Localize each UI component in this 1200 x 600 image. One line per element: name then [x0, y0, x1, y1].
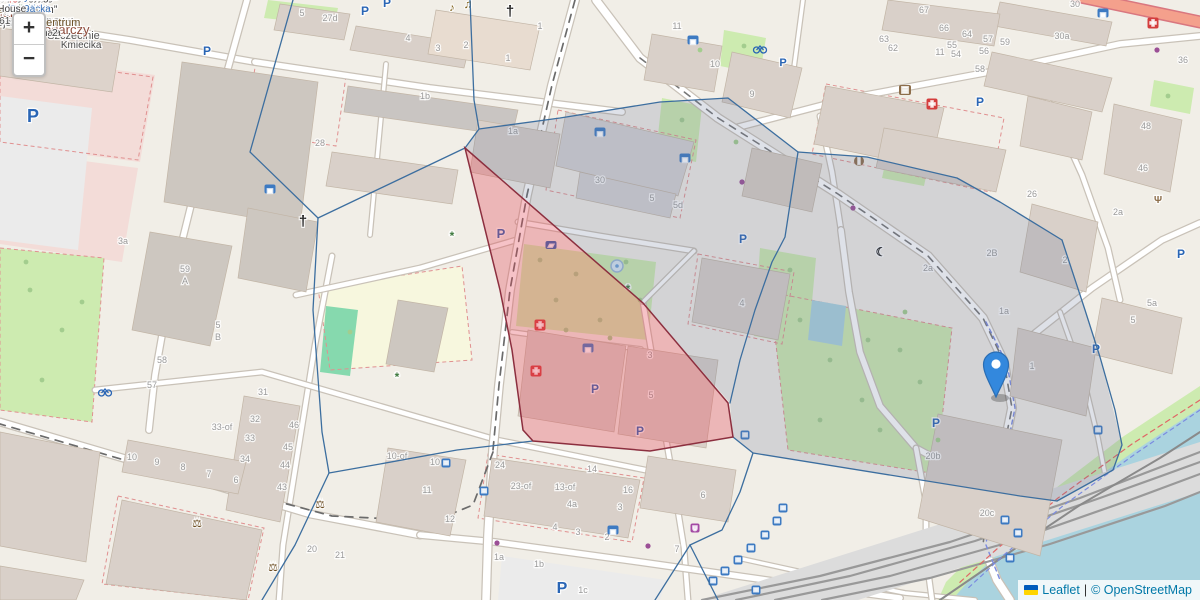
housenumber-label: 26 — [1027, 189, 1037, 199]
parking-icon: P — [779, 57, 786, 69]
bus-stop-icon: = — [1008, 556, 1012, 563]
poi-dot — [494, 540, 499, 545]
housenumber-label: 12 — [445, 514, 455, 524]
bus-stop-icon: = — [723, 569, 727, 576]
building — [0, 432, 100, 562]
park — [0, 248, 104, 422]
map-canvas: Księcia SamboraStoisławaStoisławaPotulic… — [0, 0, 1200, 600]
housenumber-label: 58 — [157, 355, 167, 365]
housenumber-label: 57 — [147, 380, 157, 390]
zoom-control: + − — [12, 12, 46, 77]
housenumber-label: 5a — [1147, 298, 1157, 308]
housenumber-label: 14 — [587, 464, 597, 474]
hotel-icon: ▄ — [1101, 11, 1106, 17]
housenumber-label: 44 — [280, 460, 290, 470]
marker-hole — [991, 359, 1000, 368]
restaurant-icon: Ψ — [1154, 195, 1162, 206]
trees — [742, 44, 747, 49]
housenumber-label: 59 — [1000, 37, 1010, 47]
justice-scales-icon: ⚖ — [192, 518, 202, 530]
bus-stop-icon: = — [775, 519, 779, 526]
bus-stop-icon: = — [482, 489, 486, 496]
music-note-icon: ♪ — [449, 2, 455, 14]
bus-stop-icon: = — [754, 588, 758, 595]
parking-icon: P — [976, 95, 984, 109]
housenumber-label: 5 — [299, 8, 304, 18]
zoom-out-button[interactable]: − — [14, 45, 44, 75]
housenumber-label: 31 — [258, 387, 268, 397]
housenumber-label: 46 — [289, 420, 299, 430]
housenumber-label: 20 — [307, 544, 317, 554]
trees — [40, 378, 45, 383]
parking-icon: P — [203, 44, 211, 58]
housenumber-label: 21 — [335, 550, 345, 560]
poi-dot — [1154, 47, 1159, 52]
pharmacy-icon: + — [929, 100, 935, 111]
trees — [28, 288, 33, 293]
housenumber-label: 8 — [180, 462, 185, 472]
leaflet-map[interactable]: Księcia SamboraStoisławaStoisławaPotulic… — [0, 0, 1200, 600]
trees — [1166, 94, 1171, 99]
housenumber-label: 43 — [277, 482, 287, 492]
parking-icon: P — [383, 0, 391, 10]
housenumber-label: 45 — [283, 442, 293, 452]
housenumber-label: 1c — [578, 585, 588, 595]
trees — [698, 48, 703, 53]
housenumber-label: A — [182, 276, 188, 286]
church-cross-icon: † — [506, 3, 514, 20]
housenumber-label: 16 — [623, 485, 633, 495]
housenumber-label: 36 — [1178, 55, 1188, 65]
bus-stop-icon: = — [736, 558, 740, 565]
leaflet-link[interactable]: Leaflet — [1042, 583, 1080, 597]
attribution-bar: Leaflet | © OpenStreetMap — [1018, 580, 1200, 600]
parking-icon: P — [557, 580, 568, 597]
housenumber-label: 7 — [206, 469, 211, 479]
bus-stop-icon: = — [781, 506, 785, 513]
building — [164, 62, 318, 226]
parking-icon: P — [27, 106, 39, 126]
housenumber-label: 5 — [215, 320, 220, 330]
housenumber-label: 11 — [935, 47, 944, 57]
trees — [348, 330, 353, 335]
justice-scales-icon: ⚖ — [268, 562, 278, 574]
housenumber-label: 20c — [980, 508, 995, 518]
hotel-icon: ▄ — [691, 38, 696, 44]
zoom-in-button[interactable]: + — [14, 14, 44, 45]
housenumber-label: 66 — [939, 23, 949, 33]
attribution-separator: | — [1084, 583, 1087, 597]
housenumber-label: 6 — [700, 490, 705, 500]
housenumber-label: 30 — [1070, 0, 1080, 9]
housenumber-label: 33 — [245, 433, 255, 443]
parking-lot — [0, 96, 92, 250]
bus-stop-icon: = — [444, 461, 448, 468]
housenumber-label: 2 — [463, 40, 468, 50]
parking-icon: P — [361, 4, 369, 18]
parking-icon: P — [1177, 247, 1185, 261]
housenumber-label: 9 — [749, 89, 754, 99]
housenumber-label: 13-of — [555, 482, 576, 492]
church-cross-icon: † — [299, 213, 307, 230]
housenumber-label: 9 — [154, 457, 159, 467]
housenumber-label: 1 — [537, 21, 542, 31]
hotel-icon: ▄ — [268, 187, 273, 193]
housenumber-label: 4a — [567, 499, 577, 509]
housenumber-label: 30a — [1054, 31, 1069, 41]
housenumber-label: 11 — [672, 21, 681, 31]
housenumber-label: 59 — [180, 264, 190, 274]
housenumber-label: 10 — [430, 457, 440, 467]
housenumber-label: 23-of — [511, 481, 532, 491]
poi-dot — [645, 543, 650, 548]
housenumber-label: 28 — [315, 138, 325, 148]
playground-icon: * — [450, 229, 455, 243]
housenumber-label: 62 — [888, 43, 898, 53]
osm-link[interactable]: © OpenStreetMap — [1091, 583, 1192, 597]
housenumber-label: 54 — [951, 49, 961, 59]
bus-stop-icon: = — [1003, 518, 1007, 525]
housenumber-label: 1 — [505, 53, 510, 63]
housenumber-label: 1a — [494, 552, 504, 562]
bus-stop-icon: = — [1016, 531, 1020, 538]
housenumber-label: 27d — [322, 13, 337, 23]
shop-icon: ∪ — [693, 526, 697, 532]
housenumber-label: 34 — [240, 454, 250, 464]
ukraine-flag-icon — [1024, 585, 1038, 595]
music-note-icon: ♫ — [464, 0, 473, 11]
housenumber-label: 7 — [674, 544, 679, 554]
housenumber-label: 48 — [1141, 121, 1151, 131]
housenumber-label: 64 — [962, 29, 972, 39]
housenumber-label: 3 — [435, 43, 440, 53]
housenumber-label: 1b — [420, 91, 430, 101]
housenumber-label: 57 — [983, 34, 993, 44]
housenumber-label: 67 — [919, 5, 929, 15]
housenumber-label: 33-of — [212, 422, 233, 432]
housenumber-label: 56 — [979, 46, 989, 56]
housenumber-label: 2a — [1113, 207, 1123, 217]
housenumber-label: 5 — [1130, 315, 1135, 325]
playground-icon: * — [395, 370, 400, 384]
housenumber-label: 58 — [975, 64, 985, 74]
housenumber-label: 6 — [233, 475, 238, 485]
housenumber-label: 3a — [118, 236, 128, 246]
housenumber-label: 24 — [495, 460, 505, 470]
housenumber-label: 46 — [1138, 163, 1148, 173]
housenumber-label: 10 — [127, 452, 137, 462]
housenumber-label: 3 — [617, 502, 622, 512]
pharmacy-icon: + — [1150, 19, 1156, 30]
hotel-icon: ▄ — [611, 528, 616, 534]
library-icon: ☰ — [902, 88, 908, 95]
bus-stop-icon: = — [749, 546, 753, 553]
housenumber-label: 1b — [534, 559, 544, 569]
housenumber-label: 3 — [575, 527, 580, 537]
housenumber-label: 32 — [250, 414, 260, 424]
housenumber-label: 11 — [422, 485, 431, 495]
trees — [24, 260, 29, 265]
housenumber-label: 4 — [405, 33, 410, 43]
housenumber-label: 4 — [552, 522, 557, 532]
map-label: Dworcowa — [0, 0, 24, 3]
housenumber-label: 10 — [710, 59, 720, 69]
housenumber-label: B — [215, 332, 221, 342]
bus-stop-icon: = — [763, 533, 767, 540]
trees — [60, 328, 65, 333]
bus-stop-icon: = — [711, 579, 715, 586]
trees — [80, 300, 85, 305]
